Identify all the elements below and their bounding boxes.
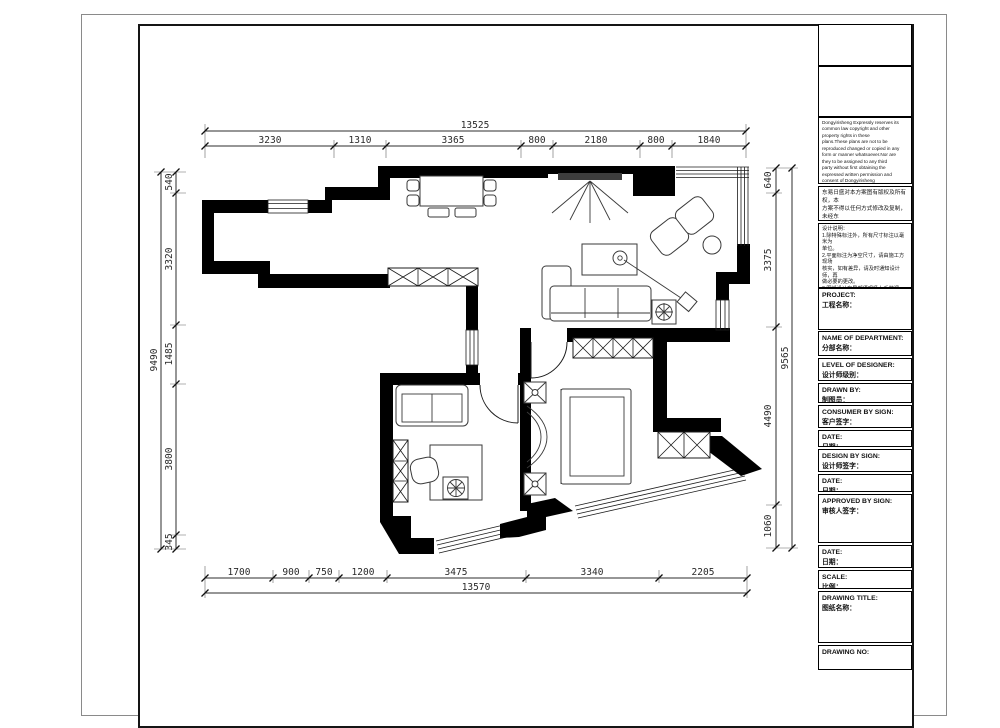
titleblock-designer-level: LEVEL OF DESIGNER: 设计师级别： [818, 358, 912, 381]
dimensions-right: 640 3375 4490 1060 9565 [763, 165, 798, 552]
project-label-en: PROJECT: [822, 291, 908, 301]
hall-window [466, 330, 478, 365]
dim-top-seg: 800 [647, 135, 664, 146]
consumer-sign-label-cn: 客户签字： [822, 418, 908, 428]
bedroom-side-wardrobe-hatch [658, 432, 710, 458]
designer-level-label-en: LEVEL OF DESIGNER: [822, 361, 908, 371]
titleblock-approved-sign: APPROVED BY SIGN: 审核人签字： [818, 494, 912, 543]
scale-label-en: SCALE: [822, 573, 908, 583]
titleblock-drawing-title: DRAWING TITLE: 图纸名称： [818, 591, 912, 643]
wall-zigzag-study-corner [380, 496, 434, 554]
plant-desk [443, 477, 468, 499]
wall-corner-arrow [708, 436, 762, 476]
loveseat [396, 385, 468, 426]
coffee-table [582, 244, 637, 275]
designer-level-label-cn: 设计师级别： [822, 371, 908, 381]
titleblock-project: PROJECT: 工程名称： [818, 288, 912, 330]
date-label-cn: 日期： [822, 558, 908, 568]
titleblock-date-1: DATE: 日期： [818, 430, 912, 447]
dim-right-seg: 3375 [763, 249, 774, 272]
dim-bottom-seg: 750 [315, 567, 332, 578]
door-study [480, 385, 518, 423]
dim-bottom-seg: 3340 [581, 567, 604, 578]
dim-bottom-seg: 1200 [352, 567, 375, 578]
living-window [716, 300, 729, 330]
drawing-title-label-en: DRAWING TITLE: [822, 594, 908, 604]
bedroom-top-wardrobe-hatch [573, 338, 653, 358]
titleblock-design-notes: 设计说明： 1.除特殊标注外，所有尺寸标注以毫米为 单位。 2.平面标注为净空尺… [818, 223, 912, 288]
titleblock-scale: SCALE: 比例： [818, 570, 912, 589]
bookcase-hatch [393, 440, 408, 502]
dim-top-seg: 3230 [259, 135, 282, 146]
dim-bottom-seg: 3475 [445, 567, 468, 578]
approved-sign-label-cn: 审核人签字： [822, 507, 908, 517]
design-sign-label-en: DESIGN BY SIGN: [822, 452, 908, 462]
dimensions-left: 540 3320 1485 3800 345 9490 [149, 169, 186, 553]
dim-top-seg: 2180 [585, 135, 608, 146]
dim-left-seg: 3320 [164, 247, 175, 270]
titleblock-empty-1 [818, 24, 912, 66]
dim-bottom-seg: 900 [282, 567, 299, 578]
dim-top-total: 13525 [461, 120, 490, 131]
dim-top-seg: 800 [528, 135, 545, 146]
bed [561, 389, 631, 484]
approved-sign-label-en: APPROVED BY SIGN: [822, 497, 908, 507]
side-table [703, 236, 721, 254]
dim-top-seg: 1310 [349, 135, 372, 146]
department-label-en: NAME OF DEPARTMENT: [822, 334, 908, 344]
dim-right-total: 9565 [780, 347, 791, 370]
titleblock-drawn-by: DRAWN BY: 制图员： [818, 383, 912, 403]
drawing-title-label-cn: 图纸名称： [822, 604, 908, 614]
dim-top-seg: 1840 [698, 135, 721, 146]
wall-zigzag-entry [500, 498, 573, 538]
titleblock-date-2: DATE: 日期： [818, 474, 912, 492]
kitchen-cabinet-hatch [388, 268, 478, 286]
dim-left-seg: 3800 [164, 447, 175, 470]
dim-left-seg: 540 [164, 173, 175, 190]
project-label-cn: 工程名称： [822, 301, 908, 311]
copyright-cn-text: 东易日盛对本方案图有版权及所有权，本 方案不得以任何方式修改及复制，未经东 易日… [822, 189, 908, 221]
department-label-cn: 分部名称： [822, 344, 908, 354]
date-label-en: DATE: [822, 477, 908, 487]
date-label-en: DATE: [822, 433, 908, 443]
door-bedroom [531, 342, 567, 378]
titleblock-design-sign: DESIGN BY SIGN: 设计师签字： [818, 449, 912, 472]
dimensions-top: 13525 3230 1310 3365 800 2180 800 1840 [202, 120, 750, 158]
date-label-en: DATE: [822, 548, 908, 558]
drawn-by-label-en: DRAWN BY: [822, 386, 908, 396]
date-label-cn: 日期： [822, 487, 908, 492]
dim-bottom-seg: 2205 [692, 567, 715, 578]
titleblock-department: NAME OF DEPARTMENT: 分部名称： [818, 331, 912, 356]
titleblock-empty-2 [818, 66, 912, 117]
nightstand-2 [524, 473, 546, 495]
dim-top-seg: 3365 [442, 135, 465, 146]
titleblock-drawing-no: DRAWING NO: [818, 645, 912, 670]
kitchen-window [268, 200, 308, 213]
dim-right-seg: 4490 [763, 404, 774, 427]
nightstand-1 [524, 382, 546, 403]
dim-left-total: 9490 [149, 348, 160, 371]
plant-sofa [652, 300, 676, 324]
dim-bottom-total: 13570 [462, 582, 491, 593]
dim-left-seg: 1485 [164, 343, 175, 366]
copyright-en-text: Dongyirisheng Expressly reserves its com… [822, 120, 908, 184]
titleblock-date-3: DATE: 日期： [818, 545, 912, 568]
drawing-no-label-en: DRAWING NO: [822, 648, 908, 658]
titleblock-copyright-en: Dongyirisheng Expressly reserves its com… [818, 117, 912, 184]
design-notes-text: 设计说明： 1.除特殊标注外，所有尺寸标注以毫米为 单位。 2.平面标注为净空尺… [822, 226, 908, 288]
consumer-sign-label-en: CONSUMER BY SIGN: [822, 408, 908, 418]
drawn-by-label-cn: 制图员： [822, 396, 908, 403]
titleblock-consumer-sign: CONSUMER BY SIGN: 客户签字： [818, 405, 912, 428]
dim-bottom-seg: 1700 [228, 567, 251, 578]
date-label-cn: 日期： [822, 443, 908, 447]
design-sign-label-cn: 设计师签字： [822, 462, 908, 472]
dim-left-seg: 345 [164, 533, 175, 550]
scale-label-cn: 比例： [822, 583, 908, 589]
dining-set [407, 176, 496, 217]
dim-right-seg: 1060 [763, 514, 774, 537]
dim-right-seg: 640 [763, 171, 774, 188]
titleblock-copyright-cn: 东易日盛对本方案图有版权及所有权，本 方案不得以任何方式修改及复制，未经东 易日… [818, 186, 912, 221]
dimensions-bottom: 1700 900 750 1200 3475 3340 2205 13570 [202, 566, 751, 598]
tv [552, 173, 628, 223]
